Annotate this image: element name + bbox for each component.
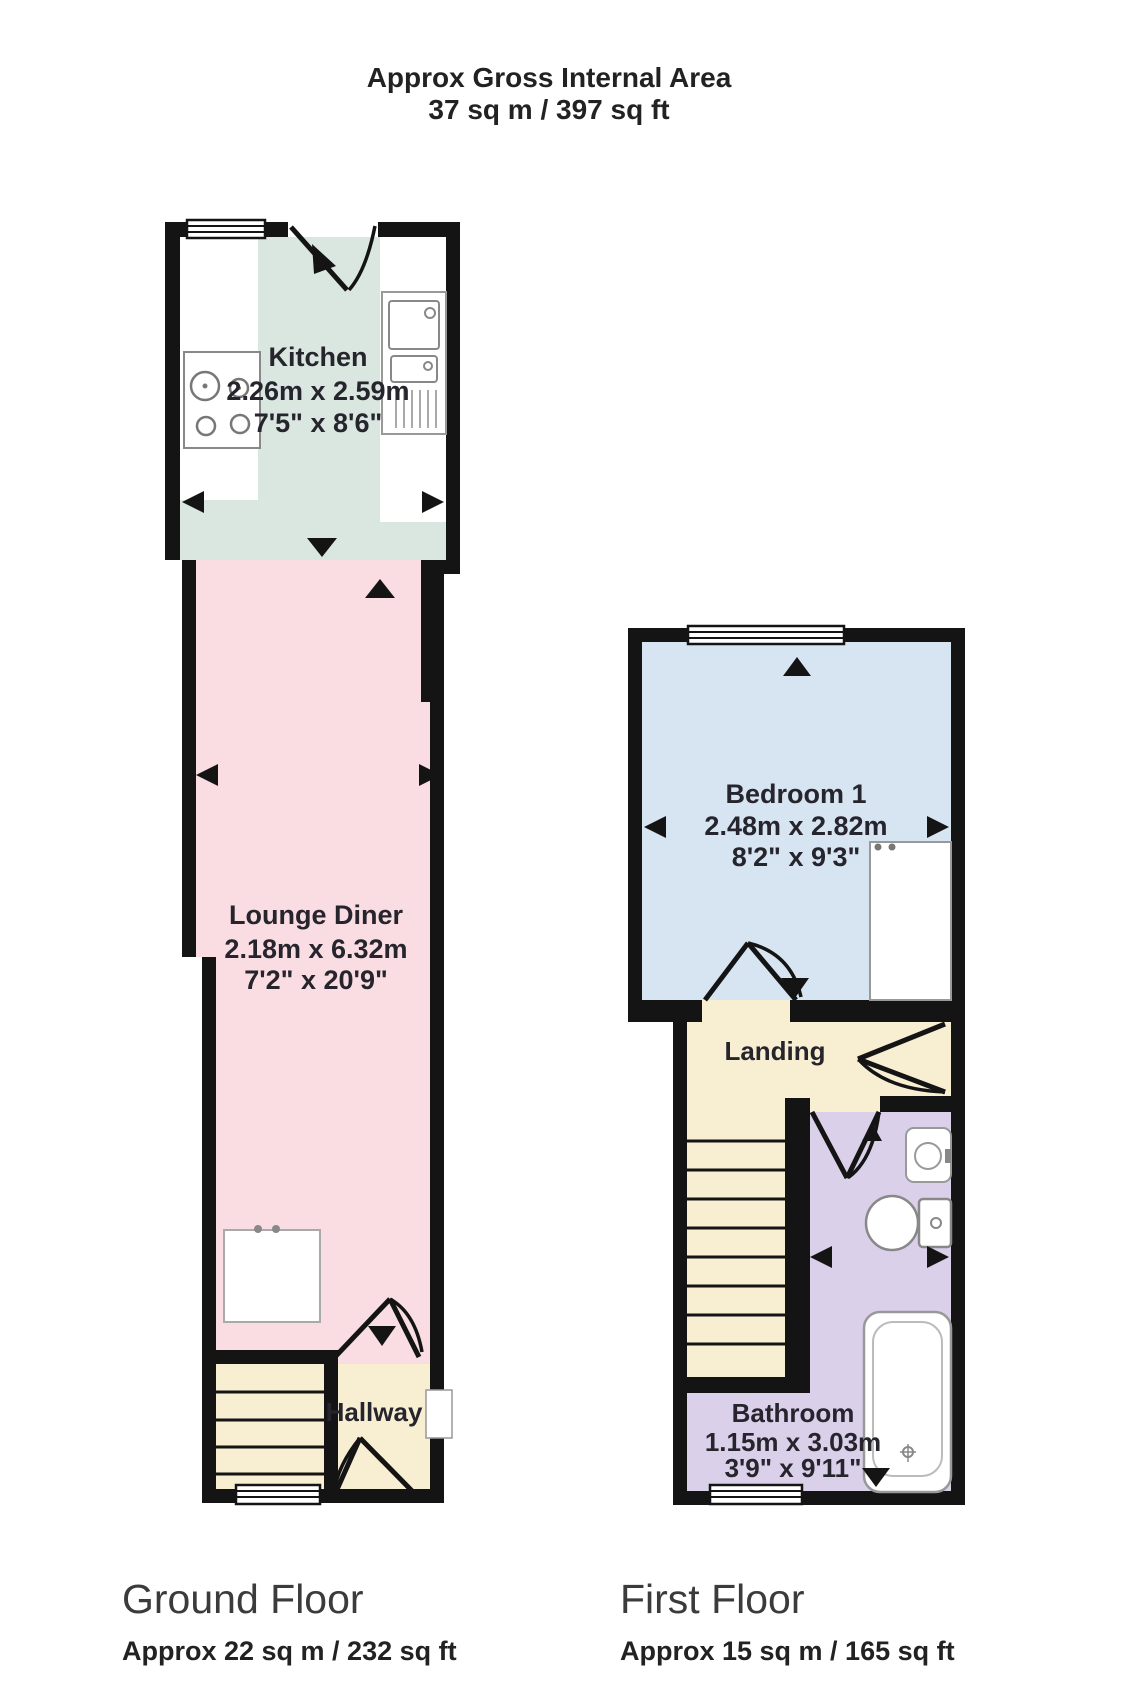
lounge-imperial: 7'2" x 20'9"	[244, 966, 388, 994]
stairs-ground	[216, 1364, 324, 1489]
first-floor-title: First Floor	[620, 1576, 805, 1623]
floorplan-drawing	[0, 0, 1140, 1699]
lounge-fixture	[224, 1225, 320, 1322]
bedroom-label: Bedroom 1	[725, 780, 866, 808]
bedroom-landing-wall	[642, 1000, 951, 1022]
hallway-side-door	[426, 1390, 452, 1438]
lounge-label: Lounge Diner	[229, 901, 403, 929]
bathroom-window	[710, 1485, 802, 1504]
bedroom-imperial: 8'2" x 9'3"	[732, 843, 861, 871]
bathroom-imperial: 3'9" x 9'11"	[725, 1455, 862, 1482]
landing-label: Landing	[724, 1038, 825, 1065]
bedroom-cupboard	[870, 842, 951, 1000]
understairs-wall	[673, 1377, 810, 1393]
kitchen-metric: 2.26m x 2.59m	[226, 377, 409, 405]
first-floor-area: Approx 15 sq m / 165 sq ft	[620, 1636, 955, 1667]
kitchen-sink-icon	[382, 292, 446, 434]
kitchen-imperial: 7'5" x 8'6"	[254, 409, 383, 437]
landing-bath-wall	[880, 1096, 951, 1112]
bathtub-icon	[864, 1312, 951, 1492]
floorplan-page: Approx Gross Internal Area 37 sq m / 397…	[0, 0, 1140, 1699]
hallway-label: Hallway	[326, 1399, 423, 1426]
toilet-icon	[866, 1196, 951, 1250]
ground-floor-title: Ground Floor	[122, 1576, 364, 1623]
bathroom-sink-icon	[906, 1128, 951, 1182]
bedroom-doorway	[702, 1000, 790, 1022]
stairwell-wall	[785, 1098, 810, 1377]
ground-bottom-window	[236, 1485, 320, 1504]
bedroom-window	[688, 626, 844, 644]
bedroom-metric: 2.48m x 2.82m	[704, 812, 887, 840]
stairs-first	[687, 1112, 785, 1377]
kitchen-label: Kitchen	[268, 343, 367, 371]
page-title-line2: 37 sq m / 397 sq ft	[428, 94, 669, 126]
bathroom-label: Bathroom	[732, 1400, 855, 1427]
page-title-line1: Approx Gross Internal Area	[367, 62, 732, 94]
ground-floor-area: Approx 22 sq m / 232 sq ft	[122, 1636, 457, 1667]
kitchen-window	[187, 220, 265, 238]
lounge-metric: 2.18m x 6.32m	[224, 935, 407, 963]
wall-pillar	[421, 560, 444, 702]
lounge-hall-wall	[202, 1350, 338, 1364]
